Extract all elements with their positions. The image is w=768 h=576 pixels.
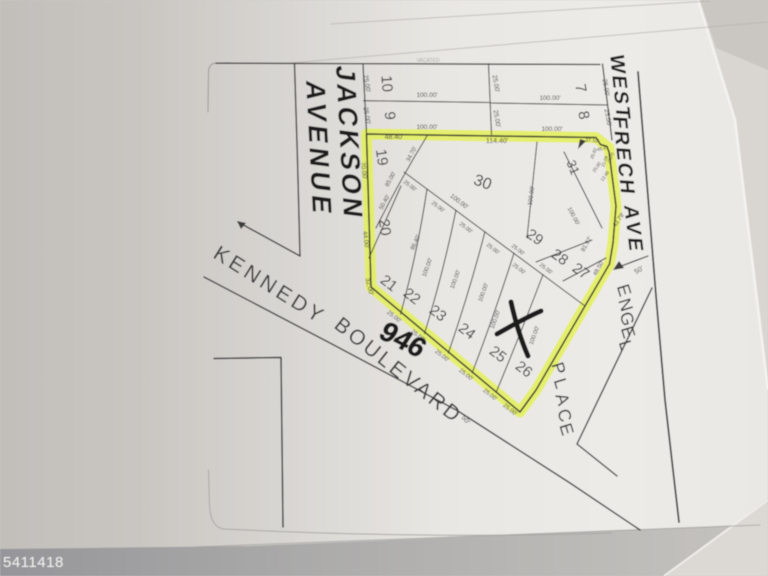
- svg-text:9: 9: [381, 111, 399, 121]
- svg-text:114.40': 114.40': [486, 138, 508, 145]
- svg-text:100.00': 100.00': [539, 95, 560, 102]
- svg-text:100.00': 100.00': [541, 126, 562, 133]
- svg-text:100.00': 100.00': [416, 124, 437, 131]
- svg-text:37.10': 37.10': [585, 138, 599, 145]
- svg-text:VACATED: VACATED: [417, 58, 440, 64]
- svg-text:10: 10: [377, 75, 395, 93]
- svg-text:48.40': 48.40': [385, 134, 404, 141]
- svg-text:20: 20: [375, 218, 394, 237]
- svg-text:19: 19: [372, 148, 391, 167]
- svg-text:100.00': 100.00': [416, 92, 437, 99]
- svg-text:5411418: 5411418: [3, 554, 64, 571]
